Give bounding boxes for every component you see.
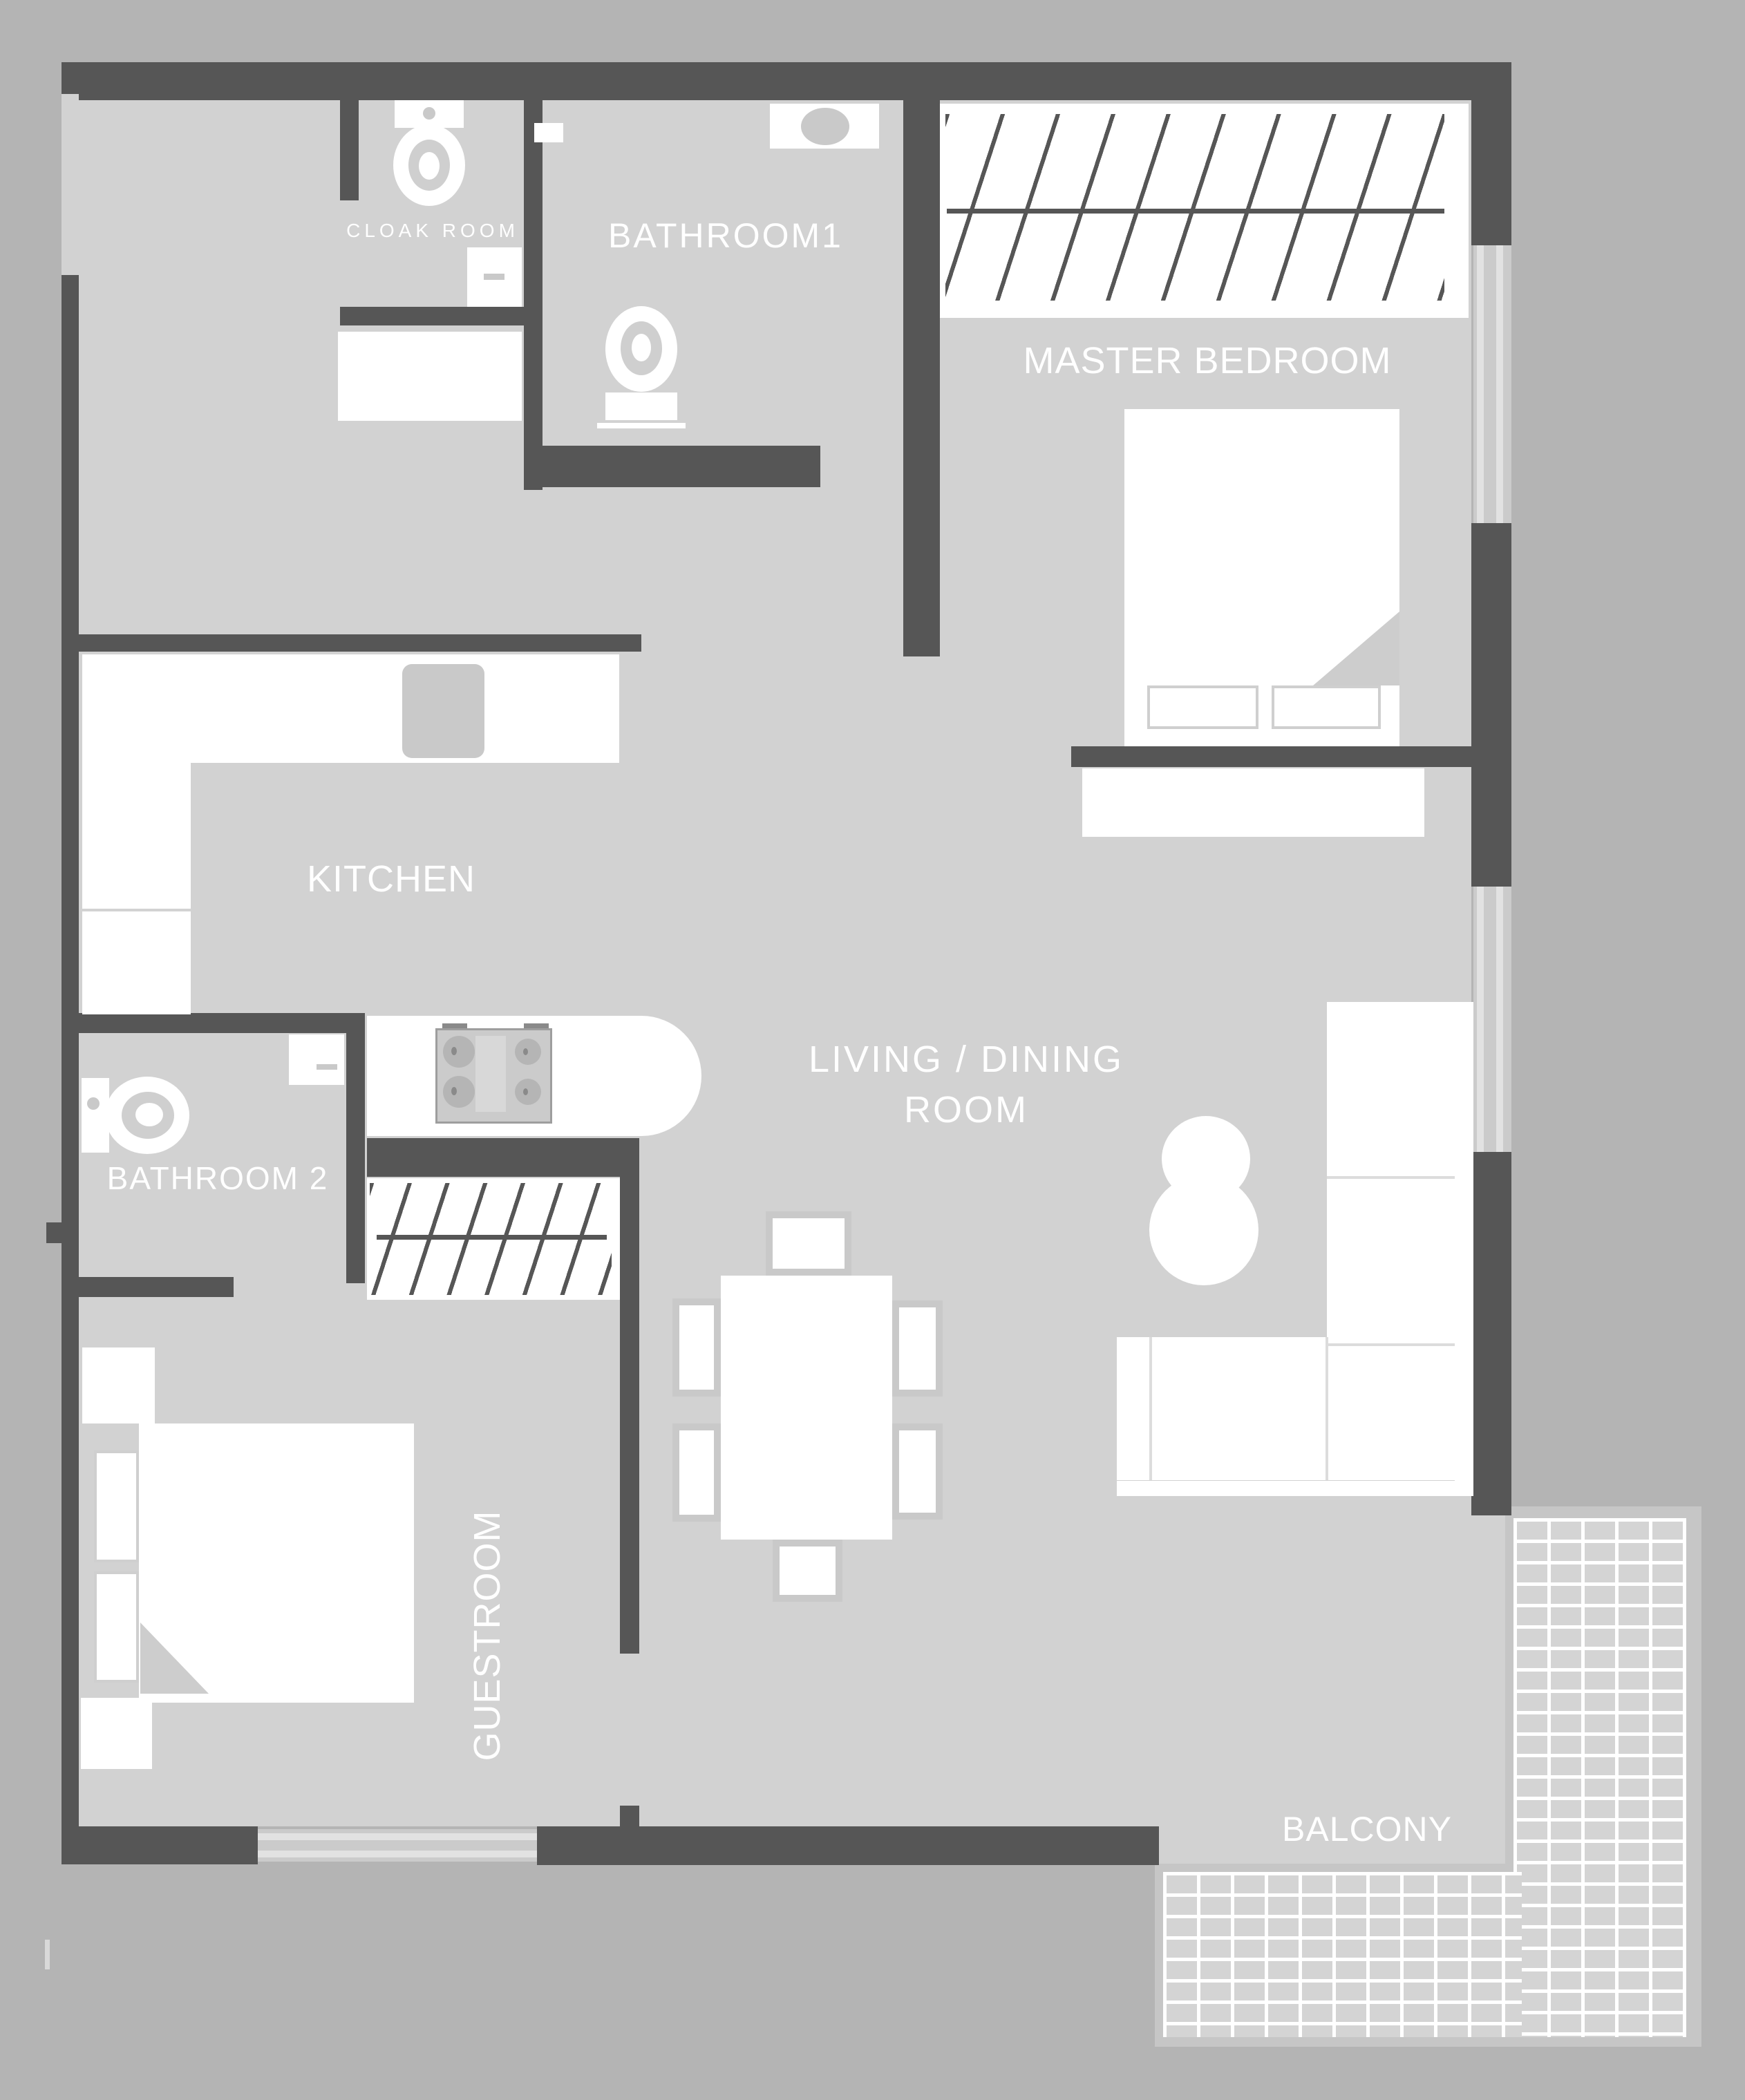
wardrobe-hatch-icon (945, 114, 1444, 301)
wall-bath2-top (62, 1013, 365, 1033)
label-balcony: BALCONY (1282, 1809, 1452, 1849)
chair-icon (892, 1300, 943, 1397)
label-living-dining-line2: ROOM (904, 1089, 1028, 1131)
wall-bottom-left (62, 1826, 258, 1864)
wall-hall-kitchen (62, 634, 641, 652)
label-living-dining-line1: LIVING / DINING (809, 1039, 1124, 1080)
wall-left-upper (62, 62, 79, 94)
wall-cloak-left (340, 62, 359, 200)
sliding-door-icon (258, 1829, 537, 1862)
wall-bath2-bottom (76, 1277, 234, 1297)
bed-icon (139, 1423, 414, 1703)
sofa-cushion-divider (1327, 1176, 1455, 1179)
wardrobe-rail (947, 209, 1444, 214)
sink-tap (484, 274, 504, 280)
wall-stove-bottom (367, 1138, 637, 1177)
sofa-cushion-divider (1326, 1337, 1328, 1480)
toilet-bowl-hole (419, 152, 440, 180)
wall-cloak-bottom (340, 307, 541, 325)
entrance-opening (62, 94, 79, 275)
label-kitchen: KITCHEN (307, 858, 475, 900)
wall-right-mid (1471, 523, 1511, 887)
wall-guestroom-right (620, 1138, 639, 1654)
sofa-cushion-divider (1327, 1343, 1455, 1346)
sofa-cushions (1117, 1337, 1327, 1480)
wall-top (62, 62, 1511, 100)
toilet-flush-dot (423, 107, 435, 120)
balcony-tiles-icon (1163, 1872, 1522, 2037)
sofa-cushion-divider (1149, 1337, 1152, 1480)
stove-knob (524, 1023, 549, 1028)
pillow-icon (94, 1571, 139, 1683)
counter-icon (82, 654, 191, 1014)
dresser-icon (1082, 768, 1424, 837)
wall-right-lower (1471, 1152, 1511, 1515)
sink-tap (317, 1064, 337, 1070)
wall-bedroom-bottom (1071, 746, 1473, 767)
wall-left-bump (46, 1222, 79, 1243)
sink-icon (289, 1034, 344, 1085)
window-icon (1473, 245, 1511, 523)
nightstand-icon (81, 1698, 152, 1769)
side-table-icon (1149, 1175, 1258, 1285)
counter-divider (82, 909, 191, 911)
label-bathroom2: BATHROOM 2 (107, 1160, 329, 1197)
toilet-base-line (597, 423, 686, 428)
sofa-icon (1455, 1002, 1473, 1496)
wall-bath1-bottom (524, 446, 820, 487)
window-icon (1473, 887, 1511, 1152)
wall-bedroom-divider (903, 62, 940, 656)
chair-icon (766, 1211, 851, 1276)
dining-table-icon (721, 1276, 892, 1540)
wall-right-top-corner (1471, 62, 1511, 245)
wall-guestroom-right-stub (620, 1806, 639, 1833)
label-living-dining: LIVING / DINING ROOM (809, 1034, 1124, 1135)
kitchen-sink-icon (402, 664, 484, 758)
pillow-icon (94, 1450, 139, 1562)
wall-bath2-right (346, 1013, 365, 1283)
chair-icon (672, 1423, 721, 1522)
sofa-icon (1327, 1002, 1473, 1012)
pillow-icon (1147, 685, 1258, 729)
shoe-cabinet (338, 332, 522, 421)
stove-icon (435, 1028, 552, 1124)
toilet-flush-dot (87, 1097, 100, 1110)
chair-icon (892, 1423, 943, 1520)
wardrobe-rail (377, 1235, 607, 1240)
label-master-bedroom: MASTER BEDROOM (1023, 339, 1391, 382)
exterior-mark (45, 1940, 50, 1969)
label-bathroom1: BATHROOM1 (608, 216, 843, 256)
balcony-tiles-icon (1513, 1518, 1686, 2037)
stove-knob (442, 1023, 467, 1028)
wall-left (62, 275, 79, 1864)
pillow-icon (1272, 685, 1381, 729)
floor-plan: CLOAK ROOM BATHROOM1 MASTER BEDROOM KITC… (0, 0, 1745, 2100)
sofa-cushions (1327, 1012, 1455, 1480)
label-cloak-room: CLOAK ROOM (346, 220, 519, 242)
counter-round-end (581, 1016, 701, 1136)
toilet-bowl-hole (135, 1103, 163, 1126)
nightstand-icon (82, 1347, 155, 1423)
chair-icon (672, 1298, 721, 1397)
sink-basin (801, 108, 849, 145)
chair-icon (773, 1540, 842, 1602)
label-guestroom: GUESTROOM (466, 1510, 509, 1761)
toilet-icon (605, 392, 677, 420)
toilet-bowl-hole (632, 334, 651, 361)
sofa-icon (1117, 1481, 1473, 1496)
wall-fixture (534, 123, 563, 142)
